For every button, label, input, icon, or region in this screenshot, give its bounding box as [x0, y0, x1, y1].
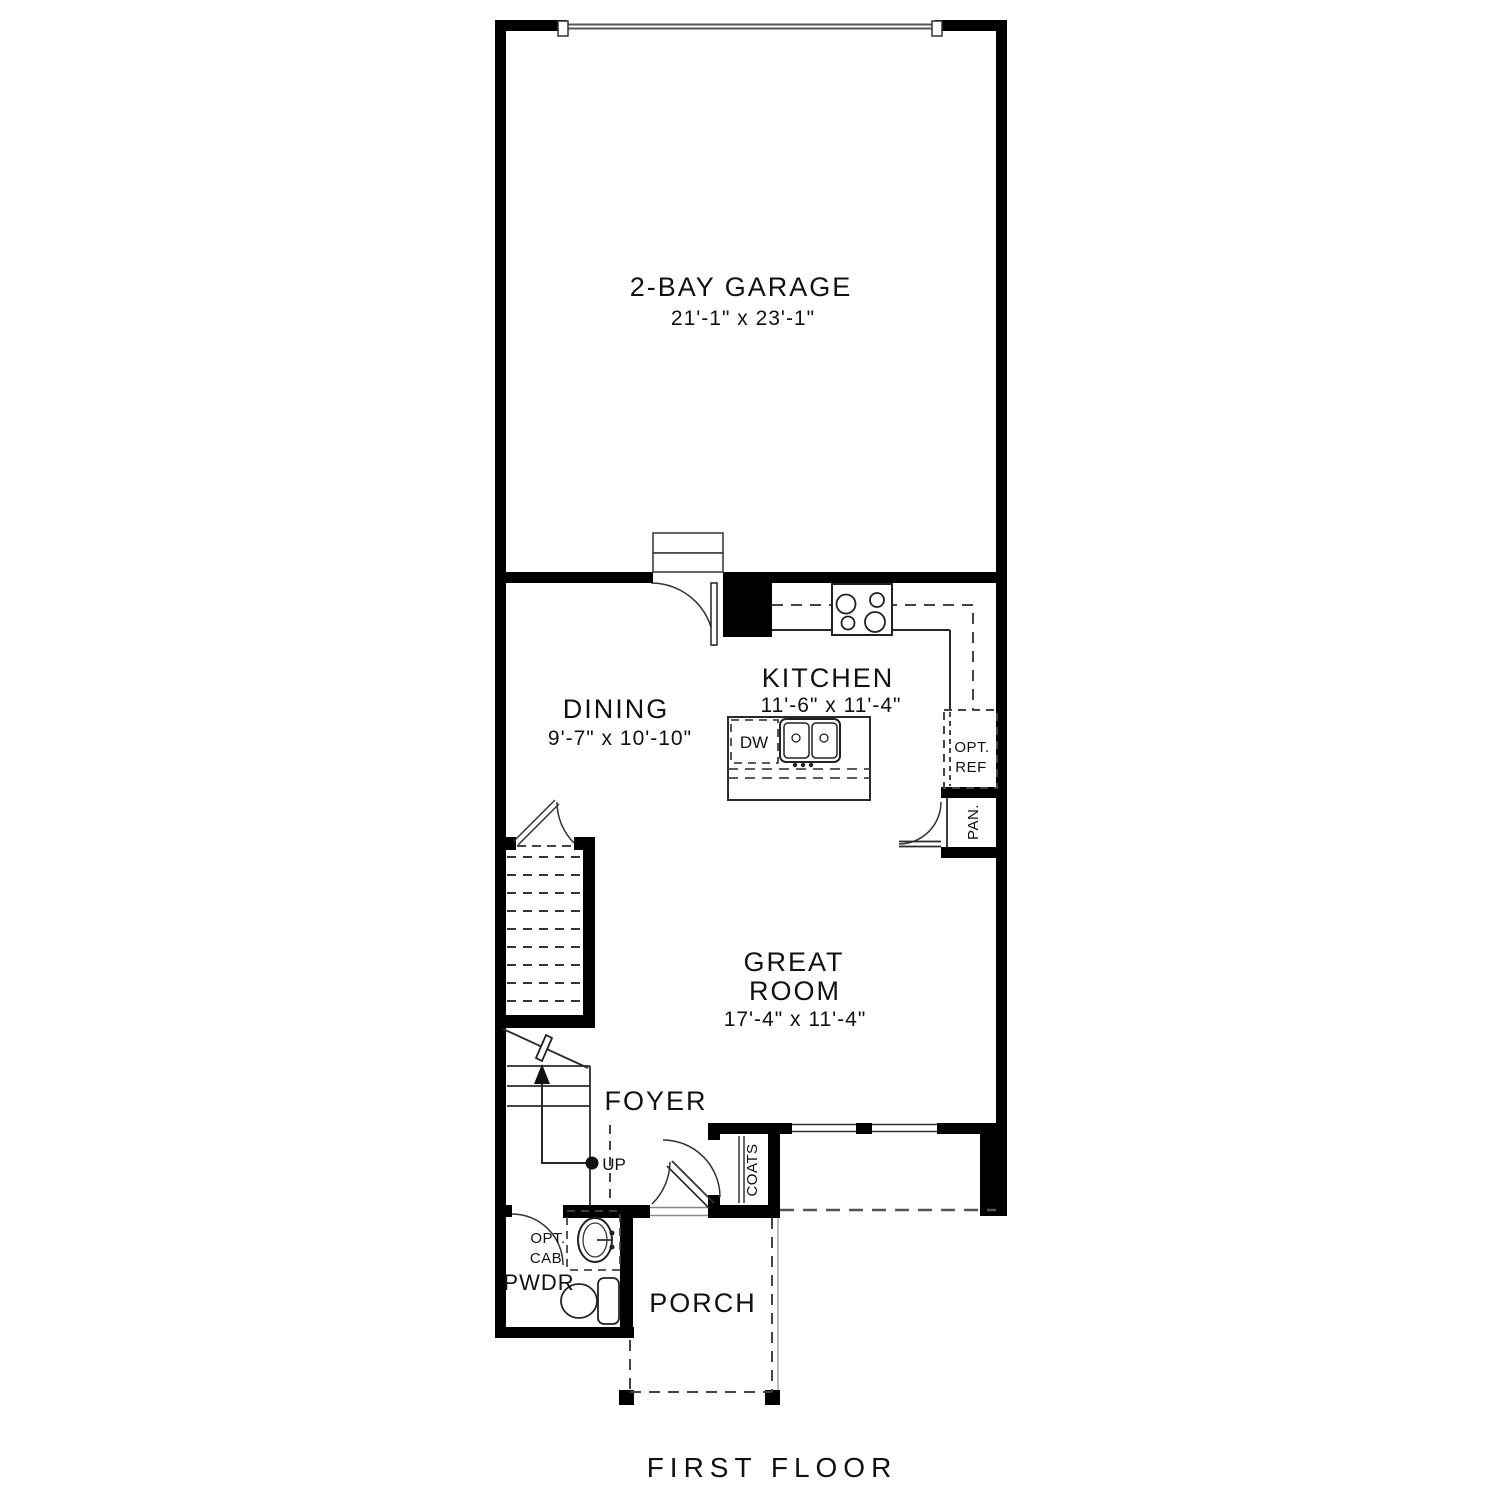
stair-right-wall [583, 843, 595, 1025]
garage-door-jamb-right [932, 21, 942, 36]
opt-ref-label-1: OPT. [954, 739, 989, 756]
stair-closet-door [514, 800, 574, 845]
corner-wall-block [980, 1123, 1007, 1216]
upper-flight-dashed-treads [507, 857, 583, 1001]
left-wall [495, 20, 506, 1338]
pantry-bottom-wall [941, 847, 1007, 858]
stair-top-wall-right-stub [574, 837, 595, 850]
kitchen-label: KITCHEN [762, 663, 895, 693]
great-room-bottom-wall-stub-2 [856, 1123, 872, 1134]
burner-top-left [837, 595, 856, 614]
great-room-bottom-wall-stub-1 [780, 1123, 792, 1134]
dishwasher-label: DW [740, 733, 768, 752]
kitchen-dims: 11'-6" x 11'-4" [760, 694, 901, 717]
stair-door-leaf-b [518, 804, 559, 845]
stair-door-leaf-a [514, 800, 555, 841]
burner-bottom-left [842, 617, 855, 630]
toilet-tank [598, 1278, 619, 1324]
opt-cab-label-1: OPT. [530, 1230, 565, 1247]
great-room-label-1: GREAT [743, 947, 844, 977]
front-door [650, 1161, 714, 1216]
garage-step-upper [653, 533, 723, 553]
powder-top-wall [563, 1205, 650, 1218]
front-door-swing [652, 1162, 670, 1204]
up-label: UP [602, 1155, 626, 1174]
right-wall [996, 20, 1007, 1216]
great-room-dims: 17'-4" x 11'-4" [724, 1008, 867, 1031]
garage-label: 2-BAY GARAGE [630, 272, 853, 302]
burner-bottom-right [865, 612, 885, 632]
lower-flight-solid-treads [507, 1066, 590, 1205]
dining-label: DINING [563, 694, 670, 724]
stair-top-wall-left-stub [495, 837, 516, 850]
kitchen-island [728, 717, 870, 800]
floor-plan-drawing: 2-BAY GARAGE 21'-1" x 23'-1" DINING 9'-7… [0, 0, 1500, 1500]
front-door-leaf-a [667, 1166, 709, 1208]
powder-faucet-handle-2 [610, 1245, 615, 1250]
entry-wall-block [723, 583, 772, 637]
garage-top-wall-left [495, 20, 567, 31]
powder-label: PWDR [503, 1270, 574, 1295]
garage-dims: 21'-1" x 23'-1" [671, 307, 815, 330]
plan-title: FIRST FLOOR [647, 1452, 898, 1483]
stair-mid-wall [495, 1015, 595, 1028]
garage-step-lower [653, 553, 723, 572]
coats-door-swing [663, 1140, 720, 1197]
up-arrowhead [534, 1064, 550, 1084]
powder-faucet-handle-1 [610, 1231, 615, 1236]
garage-entry-door [651, 533, 723, 646]
floor-plan-page: 2-BAY GARAGE 21'-1" x 23'-1" DINING 9'-7… [0, 0, 1500, 1500]
porch-label: PORCH [649, 1288, 757, 1318]
garage-entry-door-leaf [711, 583, 717, 645]
burner-top-right [870, 593, 884, 607]
faucet-dot-2 [801, 763, 805, 767]
pantry [899, 798, 947, 847]
faucet-dot-3 [809, 763, 813, 767]
up-direction-line [542, 1082, 592, 1163]
pantry-door-swing [899, 802, 941, 844]
garage-door-jamb-left [558, 21, 568, 36]
coats-right-wall [768, 1123, 780, 1218]
range [832, 584, 892, 635]
powder-right-wall [620, 1205, 633, 1338]
stair-break-symbol [536, 1035, 552, 1061]
garage-entry-door-swing [651, 583, 714, 646]
opt-ref-label-2: REF [955, 759, 987, 776]
garage-bottom-wall-left [495, 572, 653, 583]
great-room-label-2: ROOM [749, 976, 841, 1006]
opt-cab-label-2: CAB [530, 1250, 562, 1267]
sink-outer [780, 719, 840, 762]
pantry-label: PAN. [965, 804, 982, 840]
coats-left-wall-top-stub [708, 1123, 720, 1140]
dining-dims: 9'-7" x 10'-10" [548, 727, 692, 750]
up-start-dot [586, 1157, 599, 1170]
garage-door [558, 21, 942, 36]
foyer-label: FOYER [604, 1086, 707, 1116]
powder-bottom-wall [495, 1327, 634, 1338]
coats-label: COATS [744, 1143, 761, 1196]
powder-room [512, 1211, 620, 1324]
garage-bottom-wall-right [723, 572, 1007, 583]
faucet-dot-1 [793, 763, 797, 767]
powder-top-wall-stub [495, 1205, 512, 1217]
front-door-leaf-b [672, 1161, 714, 1203]
stair-door-swing [557, 802, 574, 843]
